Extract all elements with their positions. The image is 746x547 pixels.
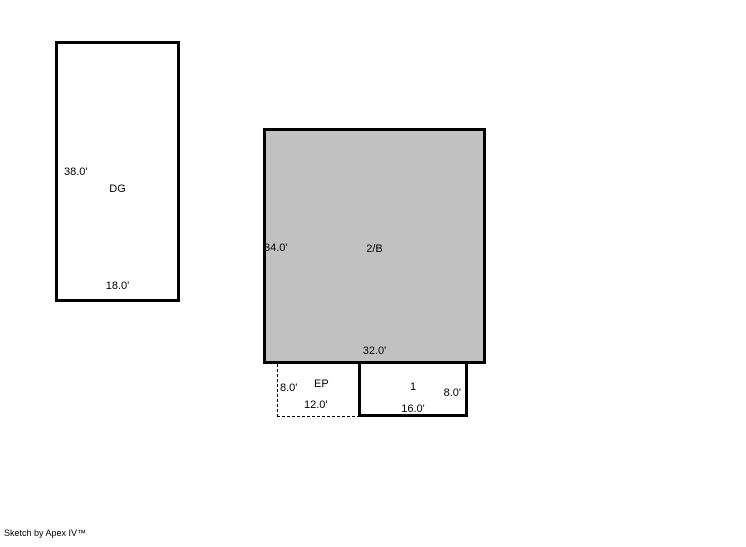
enclosed-porch-outline: 8.0' EP 12.0'	[277, 364, 360, 417]
porch-outline: 1 8.0' 16.0'	[358, 361, 468, 417]
enclosed-porch-bottom-dimension: 12.0'	[304, 399, 328, 411]
sketch-canvas: 38.0' DG 18.0' 34.0' 2/B 32.0' 8.0' EP 1…	[0, 0, 746, 547]
sketch-credit: Sketch by Apex IV™	[4, 528, 86, 539]
main-bottom-dimension: 32.0'	[266, 345, 483, 357]
garage-left-dimension: 38.0'	[64, 166, 88, 178]
garage-bottom-dimension: 18.0'	[58, 280, 177, 292]
garage-area-label: DG	[58, 183, 177, 195]
main-area-label: 2/B	[266, 243, 483, 255]
garage-outline: 38.0' DG 18.0'	[55, 41, 180, 302]
enclosed-porch-left-dimension: 8.0'	[280, 382, 297, 394]
porch-right-dimension: 8.0'	[444, 387, 461, 399]
main-dwelling-outline: 34.0' 2/B 32.0'	[263, 128, 486, 364]
porch-bottom-dimension: 16.0'	[361, 403, 465, 415]
enclosed-porch-area-label: EP	[314, 378, 329, 390]
